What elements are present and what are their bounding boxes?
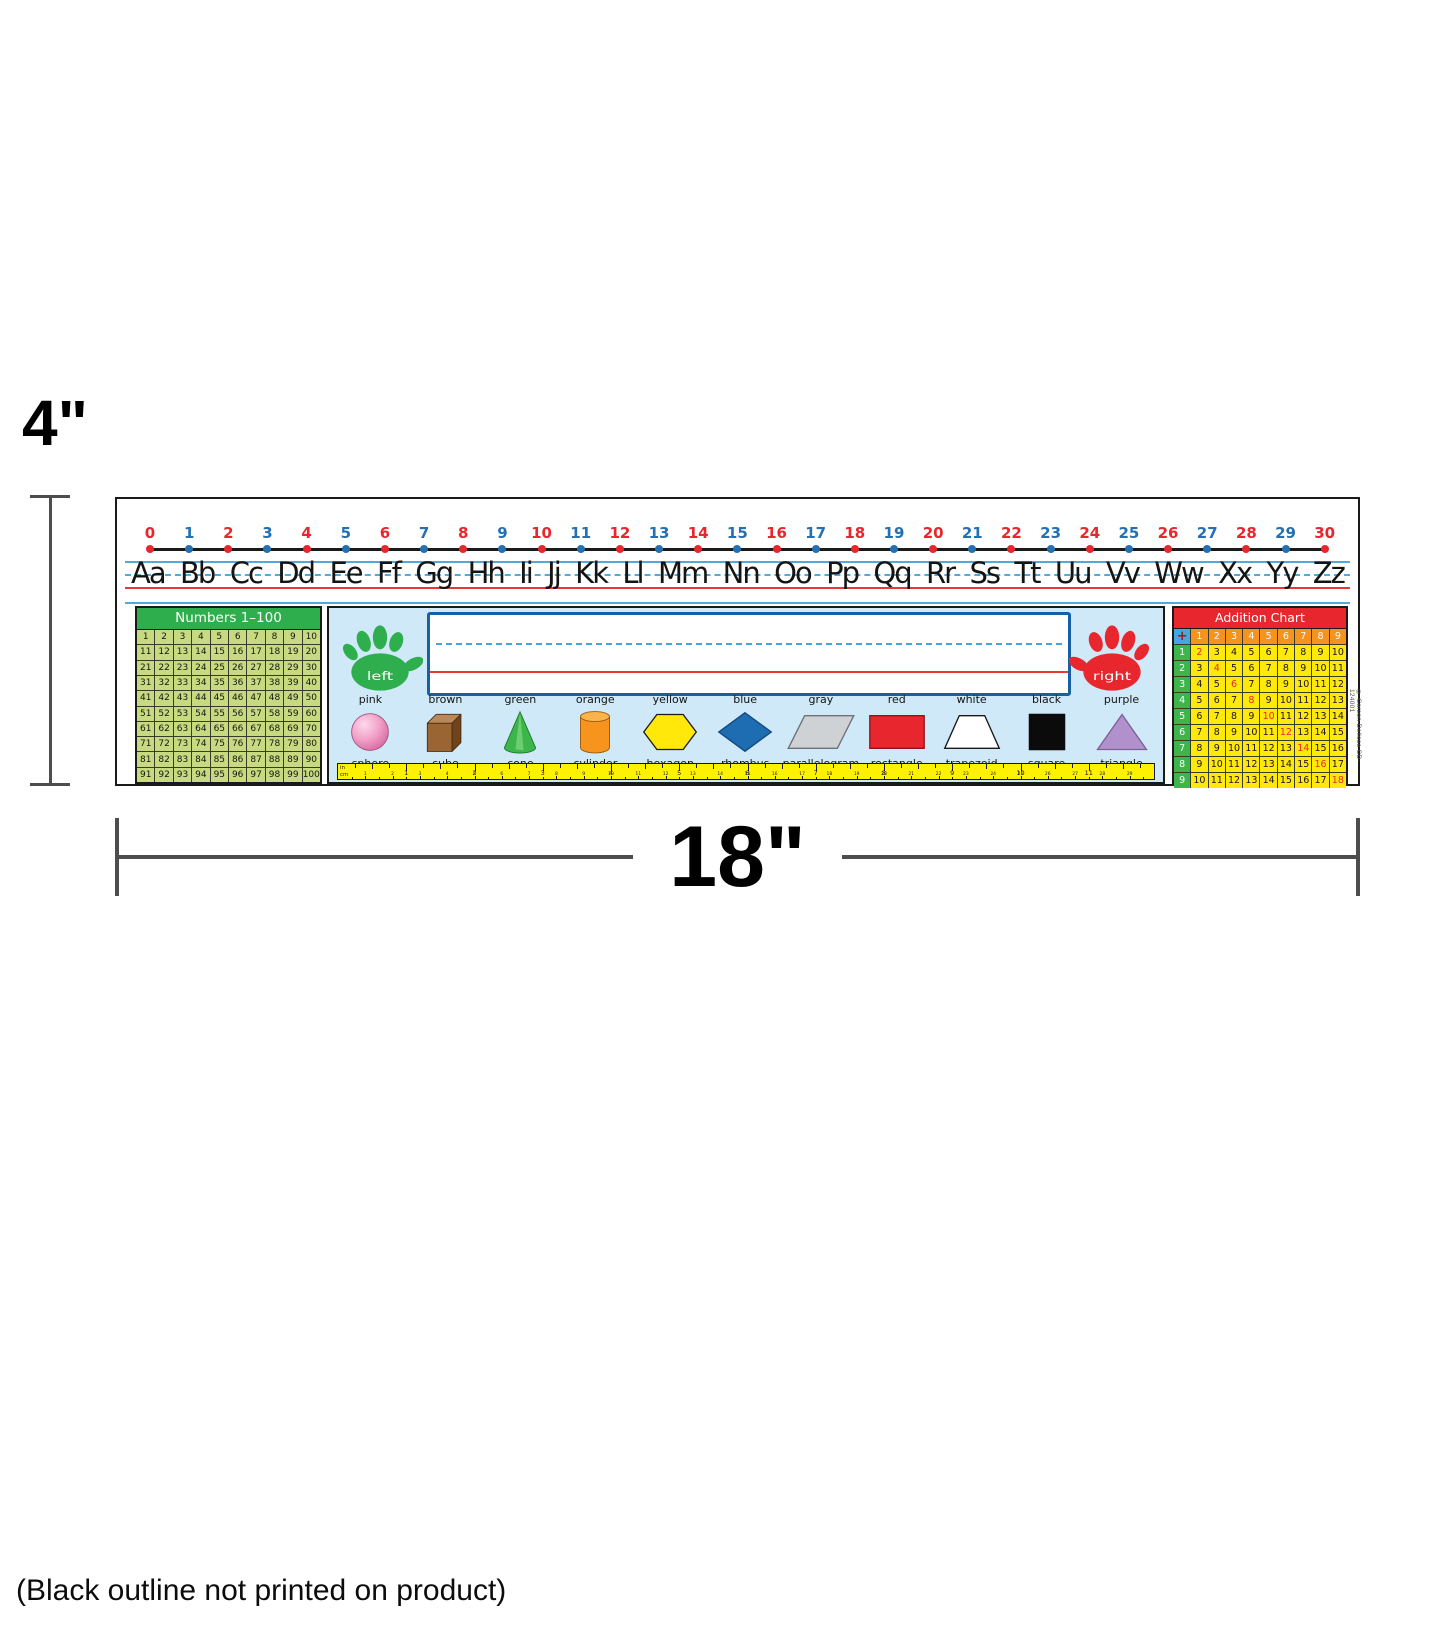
ruler-tick-inch (372, 764, 373, 769)
alphabet-pair: Ee (329, 559, 361, 588)
number-line-item: 5 (335, 525, 357, 555)
ruler-number-cm: 8 (555, 772, 558, 777)
ruler-number-cm: 12 (663, 772, 669, 777)
number-line-number: 0 (145, 525, 155, 542)
numbers-grid-cell: 23 (174, 661, 191, 675)
addition-sum-cell: 16 (1330, 741, 1346, 756)
number-line-dot (929, 545, 937, 553)
shape-triangle-icon (1095, 708, 1149, 756)
ruler-tick-inch (509, 764, 510, 769)
shape-color-label: red (888, 694, 906, 706)
number-line-number: 1 (184, 525, 194, 542)
ruler-tick-inch (492, 764, 493, 768)
numbers-grid-cell: 68 (266, 722, 283, 736)
numbers-grid-cell: 84 (192, 752, 209, 766)
numbers-grid-cell: 49 (284, 691, 301, 705)
addition-sum-cell: 9 (1209, 741, 1225, 756)
ruler-number-cm: 15 (745, 772, 751, 777)
name-writing-panel: left right (327, 606, 1165, 784)
number-line: 0123456789101112131415161718192021222324… (139, 525, 1336, 555)
number-line-dot (263, 545, 271, 553)
addition-sum-cell: 8 (1209, 725, 1225, 740)
number-line-number: 24 (1079, 525, 1100, 542)
addition-row-header: 5 (1174, 709, 1190, 724)
numbers-grid-cell: 74 (192, 737, 209, 751)
ruler-number-cm: 2 (391, 772, 394, 777)
addition-sum-cell: 9 (1312, 645, 1328, 660)
numbers-grid-cell: 77 (247, 737, 264, 751)
ruler-tick-inch (918, 764, 919, 769)
ruler-tick-cm (461, 777, 462, 779)
shape-color-label: yellow (653, 694, 688, 706)
addition-sum-cell: 7 (1191, 725, 1207, 740)
alphabet-pair: Jj (547, 559, 560, 588)
number-line-dot (890, 545, 898, 553)
shape-rhombus-icon (717, 708, 773, 756)
addition-sum-cell: 11 (1226, 757, 1242, 772)
addition-sum-cell: 16 (1295, 773, 1311, 788)
addition-sum-cell: 18 (1330, 773, 1346, 788)
number-line-item: 28 (1235, 525, 1257, 555)
addition-row-header: 7 (1174, 741, 1190, 756)
numbers-grid-cell: 33 (174, 676, 191, 690)
ruler-tick-cm (952, 777, 953, 779)
footnote-text: (Black outline not printed on product) (16, 1574, 506, 1608)
alphabet-pair: Gg (415, 559, 452, 588)
numbers-grid-cell: 97 (247, 768, 264, 782)
alphabet-pair: Tt (1014, 559, 1039, 588)
shape-item: yellowhexagon (633, 694, 708, 770)
addition-col-header: 3 (1226, 629, 1242, 644)
addition-sum-cell: 12 (1260, 741, 1276, 756)
number-line-item: 26 (1157, 525, 1179, 555)
alphabet-pair: Vv (1106, 559, 1139, 588)
addition-row-header: 3 (1174, 677, 1190, 692)
shape-color-label: white (957, 694, 987, 706)
numbers-grid-cell: 98 (266, 768, 283, 782)
shape-color-label: blue (733, 694, 757, 706)
ruler-tick-cm (843, 777, 844, 779)
ruler-tick-cm (925, 777, 926, 779)
number-line-item: 29 (1275, 525, 1297, 555)
right-hand-label: right (1093, 670, 1132, 683)
shape-color-label: purple (1104, 694, 1139, 706)
numbers-grid-cell: 80 (303, 737, 320, 751)
ruler-tick-inch (765, 764, 766, 768)
addition-sum-cell: 10 (1209, 757, 1225, 772)
numbers-grid-cell: 39 (284, 676, 301, 690)
ruler-tick-inch (730, 764, 731, 768)
shape-item: pinksphere (333, 694, 408, 770)
numbers-grid-cell: 94 (192, 768, 209, 782)
width-dimension-label: 18" (633, 808, 841, 907)
ruler-number-cm: 18 (827, 772, 833, 777)
number-line-dot (812, 545, 820, 553)
numbers-grid-cell: 34 (192, 676, 209, 690)
ruler-tick-inch (696, 764, 697, 768)
product-image: 4" 18" (Black outline not printed on pro… (0, 0, 1440, 1646)
alphabet-pair: Pp (826, 559, 858, 588)
number-line-item: 2 (217, 525, 239, 555)
ruler-number-cm: 1 (364, 772, 367, 777)
number-line-number: 15 (727, 525, 748, 542)
left-hand-label: left (367, 670, 394, 683)
numbers-grid-cell: 44 (192, 691, 209, 705)
numbers-grid-cell: 40 (303, 676, 320, 690)
alphabet-pair: Rr (926, 559, 954, 588)
number-line-item: 18 (844, 525, 866, 555)
numbers-grid-cell: 25 (211, 661, 228, 675)
numbers-grid-cell: 38 (266, 676, 283, 690)
shape-cone-icon (498, 708, 542, 756)
ruler-tick-inch (628, 764, 629, 768)
addition-sum-cell: 8 (1226, 709, 1242, 724)
addition-sum-cell: 12 (1295, 709, 1311, 724)
numbers-grid-cell: 28 (266, 661, 283, 675)
number-line-number: 4 (301, 525, 311, 542)
addition-sum-cell: 10 (1330, 645, 1346, 660)
number-line-number: 16 (766, 525, 787, 542)
alphabet-pair: Mm (658, 559, 707, 588)
numbers-grid-cell: 69 (284, 722, 301, 736)
numbers-grid-cell: 91 (137, 768, 154, 782)
numbers-grid-cell: 1 (137, 630, 154, 644)
addition-sum-cell: 11 (1278, 709, 1294, 724)
ruler-number-cm: 24 (990, 772, 996, 777)
alphabet-pair: Ff (377, 559, 400, 588)
ruler-number-cm: 3 (418, 772, 421, 777)
shape-item: browncube (408, 694, 483, 770)
number-line-dot (577, 545, 585, 553)
addition-sum-cell: 6 (1226, 677, 1242, 692)
number-line-item: 22 (1000, 525, 1022, 555)
addition-sum-cell: 9 (1191, 757, 1207, 772)
numbers-grid-cell: 78 (266, 737, 283, 751)
number-line-dot (342, 545, 350, 553)
addition-sum-cell: 6 (1191, 709, 1207, 724)
addition-sum-cell: 13 (1260, 757, 1276, 772)
ruler-tick-cm (816, 777, 817, 779)
addition-sum-cell: 7 (1226, 693, 1242, 708)
addition-col-header: 4 (1243, 629, 1259, 644)
shape-item: orangecylinder (558, 694, 633, 770)
number-line-item: 9 (491, 525, 513, 555)
number-line-number: 9 (497, 525, 507, 542)
ruler-tick-cm (980, 777, 981, 779)
alphabet-pair: Nn (723, 559, 759, 588)
ruler-tick-inch (560, 764, 561, 768)
addition-sum-cell: 3 (1209, 645, 1225, 660)
numbers-grid-cell: 36 (229, 676, 246, 690)
numbers-grid-cell: 87 (247, 752, 264, 766)
ruler-number-cm: 11 (635, 772, 641, 777)
addition-sum-cell: 5 (1209, 677, 1225, 692)
addition-sum-cell: 17 (1312, 773, 1328, 788)
ruler-tick-inch (1106, 764, 1107, 768)
shape-item: blacksquare (1009, 694, 1084, 770)
addition-sum-cell: 12 (1330, 677, 1346, 692)
addition-sum-cell: 5 (1226, 661, 1242, 676)
ruler-tick-inch (457, 764, 458, 768)
ruler-number-cm: 22 (936, 772, 942, 777)
ruler-number-cm: 10 (608, 772, 614, 777)
vertical-dimension-cap-top (30, 495, 70, 498)
number-line-item: 4 (296, 525, 318, 555)
numbers-grid-cell: 59 (284, 707, 301, 721)
addition-chart-title: Addition Chart (1174, 608, 1346, 629)
addition-col-header: 6 (1278, 629, 1294, 644)
number-line-dot (1242, 545, 1250, 553)
alphabet-pair: Ll (622, 559, 642, 588)
numbers-grid-cell: 95 (211, 768, 228, 782)
addition-sum-cell: 9 (1278, 677, 1294, 692)
number-line-number: 18 (844, 525, 865, 542)
addition-sum-cell: 6 (1243, 661, 1259, 676)
numbers-grid-cell: 30 (303, 661, 320, 675)
addition-sum-cell: 12 (1243, 757, 1259, 772)
number-line-number: 5 (341, 525, 351, 542)
alphabet-pair: Hh (468, 559, 504, 588)
numbers-grid-cell: 13 (174, 645, 191, 659)
addition-col-header: 8 (1312, 629, 1328, 644)
addition-sum-cell: 11 (1209, 773, 1225, 788)
addition-sum-cell: 8 (1278, 661, 1294, 676)
shape-item: redrectangle (859, 694, 934, 770)
number-line-dot (381, 545, 389, 553)
ruler-number-cm: 13 (690, 772, 696, 777)
numbers-grid-cell: 48 (266, 691, 283, 705)
ruler-inch-unit-label: in (340, 765, 345, 771)
numbers-grid-cell: 22 (155, 661, 172, 675)
number-line-item: 0 (139, 525, 161, 555)
ruler-tick-inch (833, 764, 834, 768)
addition-sum-cell: 13 (1330, 693, 1346, 708)
numbers-grid-cell: 90 (303, 752, 320, 766)
number-line-item: 8 (452, 525, 474, 555)
ruler-tick-cm (734, 777, 735, 779)
ruler-tick-inch (867, 764, 868, 768)
number-line-number: 11 (570, 525, 591, 542)
addition-sum-cell: 10 (1226, 741, 1242, 756)
number-line-dot (1164, 545, 1172, 553)
alphabet-pair: Cc (230, 559, 262, 588)
numbers-grid-cell: 12 (155, 645, 172, 659)
addition-sum-cell: 13 (1243, 773, 1259, 788)
number-line-number: 17 (805, 525, 826, 542)
addition-sum-cell: 13 (1295, 725, 1311, 740)
addition-sum-cell: 12 (1226, 773, 1242, 788)
ruler-tick-inch (1038, 764, 1039, 768)
left-handprint-icon: left (337, 616, 423, 696)
addition-sum-cell: 14 (1312, 725, 1328, 740)
number-line-dot (538, 545, 546, 553)
numbers-grid-cell: 76 (229, 737, 246, 751)
number-line-item: 14 (687, 525, 709, 555)
shapes-row: pinkspherebrowncubegreenconeorangecylind… (333, 694, 1159, 770)
number-line-item: 27 (1196, 525, 1218, 555)
numbers-grid-cell: 85 (211, 752, 228, 766)
ruler-tick-inch (389, 764, 390, 768)
alphabet-pair: Xx (1218, 559, 1251, 588)
number-line-item: 21 (961, 525, 983, 555)
number-line-dot (185, 545, 193, 553)
addition-sum-cell: 15 (1330, 725, 1346, 740)
numbers-grid-cell: 56 (229, 707, 246, 721)
numbers-grid-cell: 66 (229, 722, 246, 736)
ruler-tick-inch (1123, 764, 1124, 769)
number-line-item: 25 (1118, 525, 1140, 555)
ruler-tick-inch (355, 764, 356, 768)
numbers-grid-cell: 17 (247, 645, 264, 659)
ruler-tick-inch (969, 764, 970, 768)
addition-col-header: 9 (1330, 629, 1346, 644)
numbers-grid-cell: 71 (137, 737, 154, 751)
numbers-grid-cell: 96 (229, 768, 246, 782)
ruler-number-cm: 28 (1100, 772, 1106, 777)
numbers-grid-cell: 63 (174, 722, 191, 736)
numbers-grid-cell: 32 (155, 676, 172, 690)
addition-sum-cell: 10 (1191, 773, 1207, 788)
copyright-text: © Carson-Dellosa CD-124001 (1350, 689, 1362, 781)
ruler-number-cm: 25 (1018, 772, 1024, 777)
addition-sum-cell: 10 (1243, 725, 1259, 740)
number-line-dot (420, 545, 428, 553)
ruler-tick-cm (488, 777, 489, 779)
ruler-number-cm: 5 (473, 772, 476, 777)
addition-row-header: 2 (1174, 661, 1190, 676)
number-line-item: 19 (883, 525, 905, 555)
number-line-item: 15 (726, 525, 748, 555)
ruler-tick-inch (935, 764, 936, 768)
addition-sum-cell: 13 (1278, 741, 1294, 756)
numbers-grid-cell: 82 (155, 752, 172, 766)
number-line-item: 7 (413, 525, 435, 555)
number-line-number: 27 (1197, 525, 1218, 542)
ruler-number-cm: 14 (717, 772, 723, 777)
ruler-number-cm: 21 (908, 772, 914, 777)
ruler-tick-cm (707, 777, 708, 779)
addition-sum-cell: 5 (1191, 693, 1207, 708)
addition-sum-cell: 7 (1260, 661, 1276, 676)
numbers-grid-cell: 6 (229, 630, 246, 644)
number-line-item: 11 (570, 525, 592, 555)
addition-sum-cell: 8 (1243, 693, 1259, 708)
ruler-tick-inch (594, 764, 595, 768)
numbers-grid-cell: 35 (211, 676, 228, 690)
numbers-grid-cell: 54 (192, 707, 209, 721)
ruler-tick-inch (577, 764, 578, 769)
ruler-number-cm: 6 (500, 772, 503, 777)
shape-parallelogram-icon (786, 708, 856, 756)
ruler-number-cm: 9 (582, 772, 585, 777)
number-line-dot (733, 545, 741, 553)
numbers-chart-panel: Numbers 1–100 12345678910111213141516171… (135, 606, 322, 784)
addition-row-header: 1 (1174, 645, 1190, 660)
number-line-item: 13 (648, 525, 670, 555)
number-line-dot (968, 545, 976, 553)
addition-row-header: 9 (1174, 773, 1190, 788)
numbers-grid-cell: 19 (284, 645, 301, 659)
ruler-cm-unit-label: cm (340, 772, 348, 778)
numbers-grid-cell: 86 (229, 752, 246, 766)
numbers-grid-cell: 47 (247, 691, 264, 705)
number-line-number: 13 (649, 525, 670, 542)
number-line-number: 25 (1118, 525, 1139, 542)
shape-item: grayparallelogram (783, 694, 860, 770)
ruler-number-cm: 16 (772, 772, 778, 777)
numbers-grid-cell: 18 (266, 645, 283, 659)
addition-chart-grid: +123456789123456789102345678910113456789… (1174, 629, 1346, 788)
numbers-grid-cell: 20 (303, 645, 320, 659)
ruler-number-cm: 4 (446, 772, 449, 777)
numbers-chart-grid: 1234567891011121314151617181920212223242… (137, 630, 320, 782)
numbers-grid-cell: 99 (284, 768, 301, 782)
number-line-dot (773, 545, 781, 553)
shape-color-label: brown (428, 694, 462, 706)
numbers-grid-cell: 92 (155, 768, 172, 782)
alphabet-pair: Bb (180, 559, 214, 588)
ruler-tick-cm (1034, 777, 1035, 779)
numbers-grid-cell: 88 (266, 752, 283, 766)
addition-sum-cell: 4 (1209, 661, 1225, 676)
shape-item: bluerhombus (708, 694, 783, 770)
numbers-grid-cell: 24 (192, 661, 209, 675)
numbers-grid-cell: 57 (247, 707, 264, 721)
number-line-number: 26 (1158, 525, 1179, 542)
addition-sum-cell: 15 (1278, 773, 1294, 788)
numbers-grid-cell: 75 (211, 737, 228, 751)
name-plate: 0123456789101112131415161718192021222324… (115, 497, 1360, 786)
addition-sum-cell: 8 (1191, 741, 1207, 756)
addition-sum-cell: 11 (1312, 677, 1328, 692)
alphabet-pair: Dd (277, 559, 314, 588)
shape-cube-icon (420, 708, 470, 756)
addition-sum-cell: 4 (1226, 645, 1242, 660)
numbers-grid-cell: 89 (284, 752, 301, 766)
numbers-grid-cell: 43 (174, 691, 191, 705)
shape-rectangle-icon (868, 708, 926, 756)
ruler-tick-inch (799, 764, 800, 768)
addition-sum-cell: 11 (1330, 661, 1346, 676)
addition-sum-cell: 9 (1260, 693, 1276, 708)
addition-sum-cell: 14 (1278, 757, 1294, 772)
number-line-item: 23 (1040, 525, 1062, 555)
addition-sum-cell: 7 (1278, 645, 1294, 660)
ruler-tick-cm (597, 777, 598, 779)
numbers-grid-cell: 42 (155, 691, 172, 705)
ruler-number-cm: 29 (1127, 772, 1133, 777)
number-line-number: 29 (1275, 525, 1296, 542)
addition-sum-cell: 6 (1209, 693, 1225, 708)
ruler-number-cm: 27 (1072, 772, 1078, 777)
numbers-grid-cell: 50 (303, 691, 320, 705)
ruler-tick-inch (782, 764, 783, 769)
ruler-tick-inch (850, 764, 851, 769)
shape-sphere-icon (349, 708, 391, 756)
numbers-grid-cell: 83 (174, 752, 191, 766)
vertical-dimension-cap-bottom (30, 783, 70, 786)
addition-col-header: 2 (1209, 629, 1225, 644)
number-line-dot (1047, 545, 1055, 553)
number-line-dot (655, 545, 663, 553)
number-line-dot (1125, 545, 1133, 553)
ruler-tick-cm (379, 777, 380, 779)
number-line-item: 17 (805, 525, 827, 555)
addition-sum-cell: 10 (1312, 661, 1328, 676)
ruler-tick-cm (406, 777, 407, 779)
ruler-tick-cm (1061, 777, 1062, 779)
addition-sum-cell: 7 (1243, 677, 1259, 692)
